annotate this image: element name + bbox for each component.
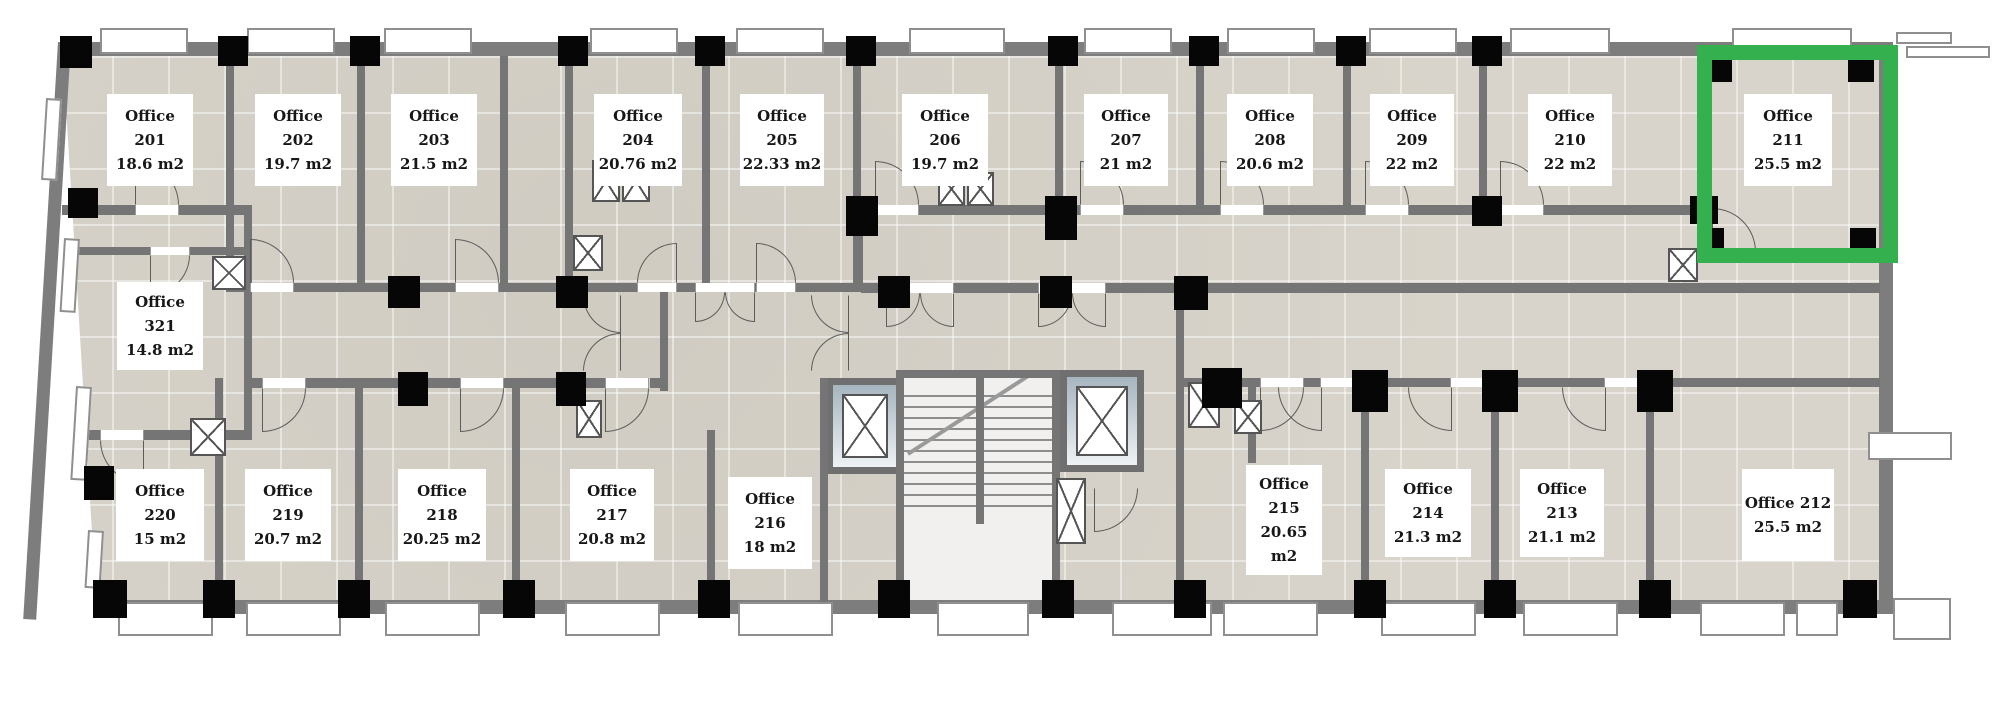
room-name: Office 206 (904, 104, 986, 152)
room-name: Office 216 (730, 487, 810, 535)
room-name: Office 203 (393, 104, 475, 152)
room-name: Office 321 (119, 290, 201, 338)
room-label-office-219[interactable]: Office 21920.7 m2 (245, 469, 331, 561)
room-name: Office 202 (257, 104, 339, 152)
room-area: 21.1 m2 (1528, 525, 1596, 549)
room-label-office-216[interactable]: Office 21618 m2 (728, 477, 812, 569)
room-name: Office 208 (1229, 104, 1311, 152)
room-area: 21.5 m2 (400, 152, 468, 176)
room-name: Office 215 (1248, 472, 1320, 520)
room-label-office-209[interactable]: Office 20922 m2 (1370, 94, 1454, 186)
room-area: 22 m2 (1386, 152, 1438, 176)
selected-unit-highlight[interactable] (1697, 45, 1898, 263)
floor-plan: Office 20118.6 m2Office 20219.7 m2Office… (0, 0, 2000, 702)
room-name: Office 205 (742, 104, 822, 152)
room-area: 15 m2 (134, 527, 186, 551)
room-label-office-206[interactable]: Office 20619.7 m2 (902, 94, 988, 186)
room-label-office-201[interactable]: Office 20118.6 m2 (107, 94, 193, 186)
room-name: Office 210 (1530, 104, 1610, 152)
room-name: Office 213 (1522, 477, 1602, 525)
room-label-office-212[interactable]: Office 21225.5 m2 (1742, 469, 1834, 561)
room-label-office-217[interactable]: Office 21720.8 m2 (570, 469, 654, 561)
room-name: Office 204 (596, 104, 680, 152)
room-area: 21.3 m2 (1394, 525, 1462, 549)
room-area: 20.65 m2 (1248, 520, 1320, 568)
room-label-office-218[interactable]: Office 21820.25 m2 (398, 469, 486, 561)
room-name: Office 209 (1372, 104, 1452, 152)
room-label-office-220[interactable]: Office 22015 m2 (116, 469, 204, 561)
room-label-office-215[interactable]: Office 21520.65 m2 (1246, 465, 1322, 575)
room-name: Office 219 (247, 479, 329, 527)
room-area: 20.76 m2 (599, 152, 678, 176)
room-label-office-213[interactable]: Office 21321.1 m2 (1520, 469, 1604, 557)
room-label-office-202[interactable]: Office 20219.7 m2 (255, 94, 341, 186)
room-area: 19.7 m2 (911, 152, 979, 176)
room-area: 20.25 m2 (403, 527, 482, 551)
room-area: 18 m2 (744, 535, 796, 559)
room-label-office-204[interactable]: Office 20420.76 m2 (594, 94, 682, 186)
room-area: 18.6 m2 (116, 152, 184, 176)
room-area: 14.8 m2 (126, 338, 194, 362)
room-label-office-205[interactable]: Office 20522.33 m2 (740, 94, 824, 186)
room-name: Office 217 (572, 479, 652, 527)
room-label-office-203[interactable]: Office 20321.5 m2 (391, 94, 477, 186)
room-label-office-207[interactable]: Office 20721 m2 (1084, 94, 1168, 186)
room-name: Office 207 (1086, 104, 1166, 152)
room-name: Office 218 (400, 479, 484, 527)
room-area: 20.6 m2 (1236, 152, 1304, 176)
room-area: 19.7 m2 (264, 152, 332, 176)
room-label-office-210[interactable]: Office 21022 m2 (1528, 94, 1612, 186)
room-name: Office 201 (109, 104, 191, 152)
room-area: 22 m2 (1544, 152, 1596, 176)
room-label-office-208[interactable]: Office 20820.6 m2 (1227, 94, 1313, 186)
room-name: Office 220 (118, 479, 202, 527)
room-area: 21 m2 (1100, 152, 1152, 176)
room-area: 20.8 m2 (578, 527, 646, 551)
room-area: 22.33 m2 (743, 152, 822, 176)
room-name: Office 214 (1387, 477, 1469, 525)
room-area: 20.7 m2 (254, 527, 322, 551)
room-label-office-214[interactable]: Office 21421.3 m2 (1385, 469, 1471, 557)
room-name: Office 212 (1745, 491, 1831, 515)
room-area: 25.5 m2 (1754, 515, 1822, 539)
room-label-office-321[interactable]: Office 32114.8 m2 (117, 282, 203, 370)
